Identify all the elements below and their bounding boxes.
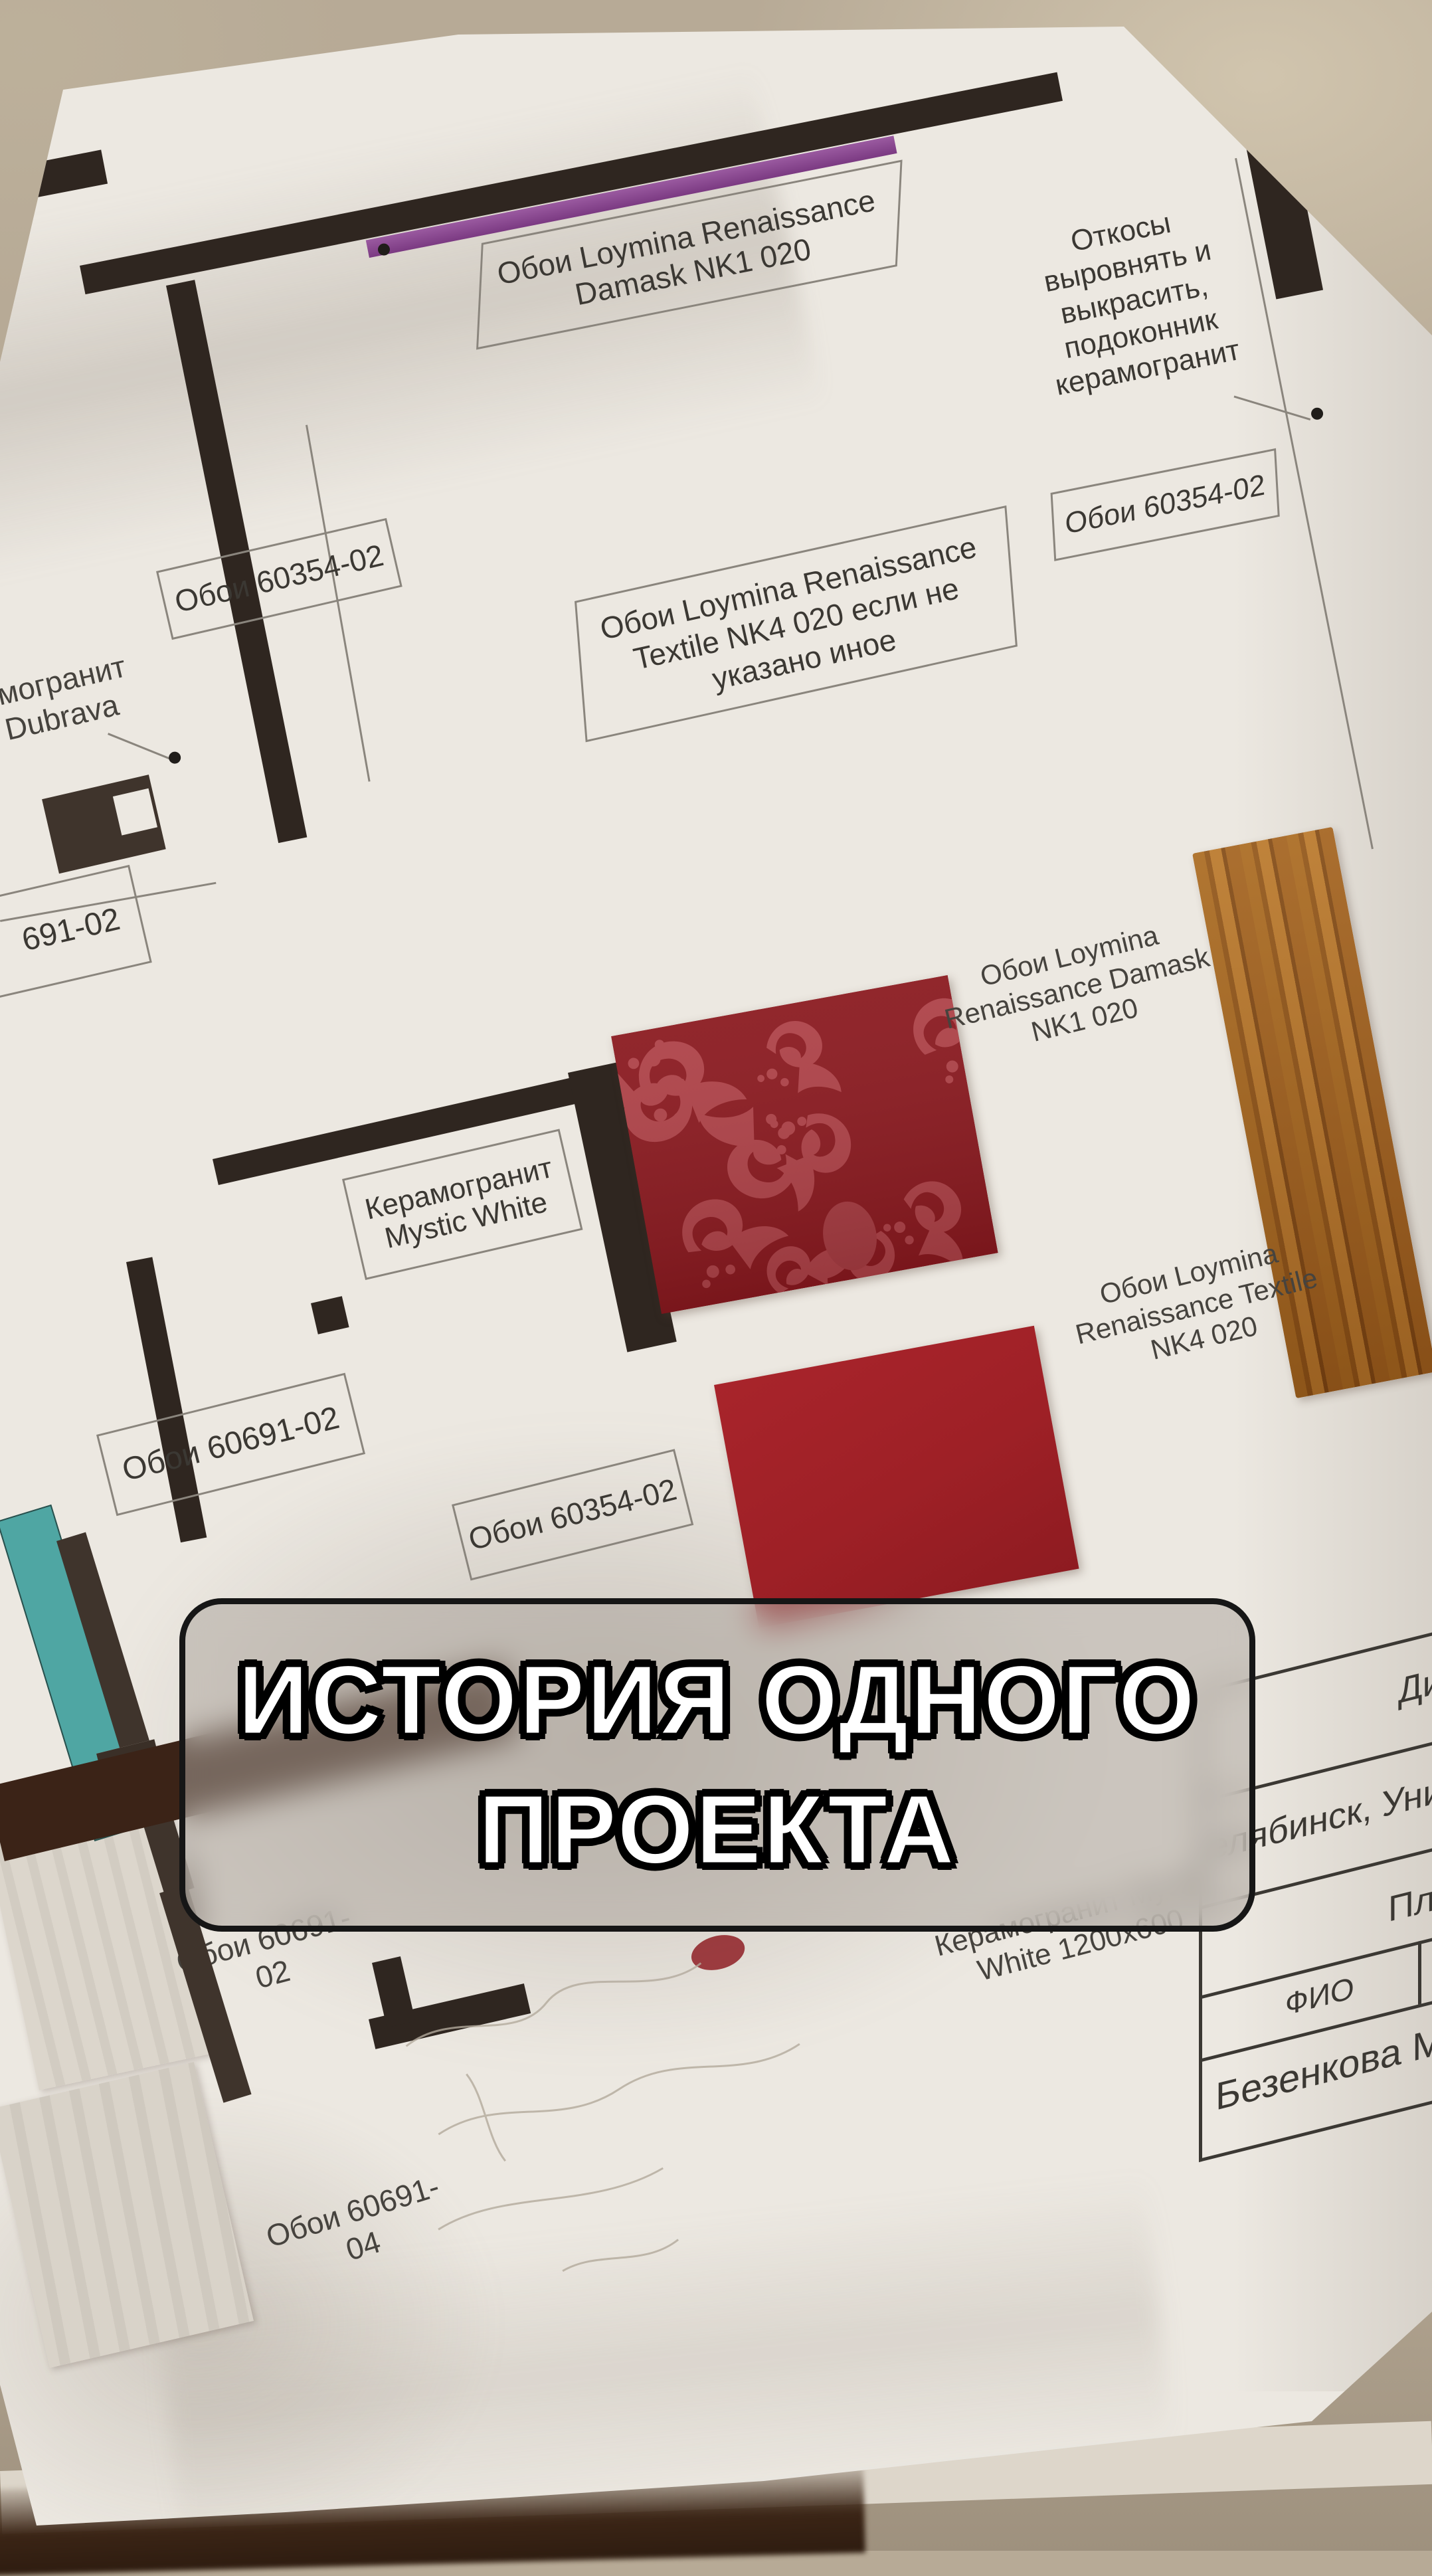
leader-dot [1310, 407, 1324, 420]
main-room-label-box: Обои Loymina Renaissance Textile NK4 020… [575, 506, 1018, 743]
textile-wallpaper-sample [714, 1326, 1079, 1628]
title-block-row1: Диз [1398, 1655, 1432, 1712]
caption-overlay: ИСТОРИЯ ОДНОГО ПРОЕКТА [179, 1598, 1255, 1932]
room-label-2-box: Обои 60691-02 [96, 1373, 365, 1517]
title-block-divider [1418, 1940, 1421, 2004]
damask-sample-caption: Обои Loymina Renaissance Damask NK1 020 [927, 907, 1227, 1069]
grey-wallpaper-sample-2 [0, 2062, 254, 2368]
window-note: Откосы выровнять и выкрасить, подоконник… [1007, 193, 1262, 407]
room-label-3-box: Обои 60354-02 [452, 1449, 693, 1580]
title-block-fio-header: ФИО [1285, 1970, 1354, 2023]
title-block-row3: Пла [1388, 1873, 1432, 1930]
leader-line [108, 733, 176, 762]
leader-dot [167, 751, 182, 765]
room-label-1-box: Обои 60354-02 [156, 518, 403, 640]
photo-of-design-project: { "caption_overlay": { "line1": "ИСТОРИЯ… [0, 0, 1432, 2551]
partial-label-box: 691-02 [0, 865, 152, 1028]
caption-line-2: ПРОЕКТА [478, 1765, 956, 1894]
tile-label-box: Керамогранит Mystic White [342, 1129, 582, 1280]
main-room-label: Обои Loymina Renaissance Textile NK4 020… [596, 529, 996, 719]
paper-sheet: Обои Loymina Renaissance Damask NK1 020 … [0, 0, 1432, 2551]
dubrava-group: могранит Dubrava [0, 630, 248, 885]
niche-label-box: Обои 60354-02 [1051, 448, 1280, 561]
caption-line-1: ИСТОРИЯ ОДНОГО [238, 1635, 1197, 1765]
leader-line [1234, 395, 1311, 420]
pencil-sketch [372, 1916, 904, 2376]
title-block-fio-value: Безенкова М.Е [1215, 2009, 1432, 2120]
dubrava-label: могранит Dubrava [0, 646, 145, 748]
wall-stub-a [311, 1296, 349, 1334]
top-wall-group: Обои Loymina Renaissance Damask NK1 020 [80, 72, 1096, 462]
